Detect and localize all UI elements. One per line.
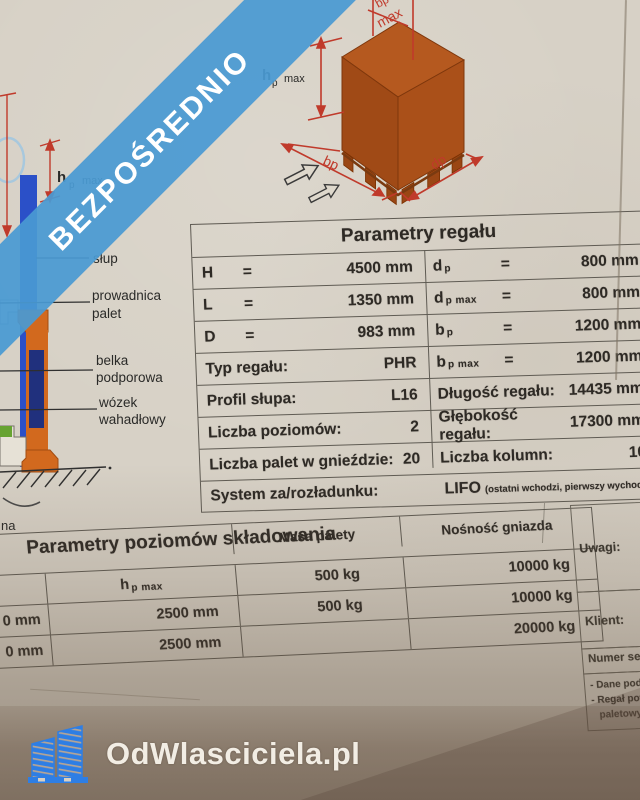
param-label: d <box>432 257 442 275</box>
footnotes-box: - Dane pod - Regał pow paletowyc <box>583 669 640 732</box>
curly-bracket <box>3 498 40 506</box>
param-label: Liczba palet w gnieździe: <box>209 451 394 474</box>
hpmax-main: h <box>120 577 130 593</box>
hpmax-sub: p max <box>131 581 163 593</box>
cell: 0 mm <box>0 605 50 640</box>
cell: Głębokość regału: 17300 mm <box>430 404 640 442</box>
cell: d p max = 800 mm <box>425 276 640 314</box>
ground-hatching <box>0 467 106 488</box>
param-label: System za/rozładunku: <box>210 483 379 506</box>
param-value: 983 mm <box>357 322 415 342</box>
param-value: 14435 mm <box>568 379 640 399</box>
param-value: L16 <box>391 386 418 405</box>
param-subscript: p <box>444 263 451 274</box>
paper-crease <box>30 689 200 700</box>
param-label: L <box>203 296 213 314</box>
column-foot <box>22 450 58 472</box>
support-beam-face <box>29 350 44 428</box>
footnote-line: - Dane pod <box>590 674 640 693</box>
param-value: 800 mm <box>582 283 640 303</box>
storage-levels-table: Parametry poziomów składowania Masa pale… <box>0 507 604 672</box>
system-value: LIFO (ostatni wchodzi, pierwszy wychodzi… <box>444 474 640 498</box>
param-value: 800 mm <box>581 251 639 271</box>
param-label: H <box>202 264 214 282</box>
hp-max-suffix: max <box>284 73 305 85</box>
rack-parameters-table: Parametry regału H = 4500 mm d p = 800 m… <box>190 210 640 512</box>
cell: 0 mm <box>0 635 53 670</box>
cell: d p = 800 mm <box>424 244 640 282</box>
uwagi-label: Uwagi: <box>579 537 640 555</box>
equals-sign: = <box>243 263 253 281</box>
cell: b p max = 1200 mm <box>428 340 640 378</box>
cell: b p = 1200 mm <box>427 308 640 346</box>
equals-sign: = <box>502 287 512 305</box>
order-info-panel: Uwagi: Klient: Numer sery - Dane pod - R… <box>570 501 640 731</box>
buildings-icon <box>26 722 92 786</box>
param-subscript: p max <box>448 358 480 370</box>
param-subscript: p <box>447 327 454 338</box>
label-podporowa: podporowa <box>96 370 163 385</box>
param-value: PHR <box>383 354 416 373</box>
param-value: 17300 mm <box>570 411 640 431</box>
param-label: Typ regału: <box>205 358 288 378</box>
column-header-masa: Masa palety <box>231 517 402 555</box>
cell <box>240 619 411 657</box>
equals-sign: = <box>244 295 254 313</box>
param-value: 1200 mm <box>576 347 640 367</box>
param-label: b <box>435 321 445 339</box>
label-belka: belka <box>96 353 129 368</box>
klient-box: Klient: <box>577 587 640 650</box>
equals-sign: = <box>500 255 510 273</box>
scanned-rack-datasheet-photo: h p max na słup prowad <box>0 0 640 800</box>
param-label: b <box>436 353 446 371</box>
param-value: 1200 mm <box>574 315 640 335</box>
param-value: 10 <box>629 443 640 461</box>
label-palet: palet <box>92 306 122 321</box>
site-watermark: OdWlasciciela.pl <box>26 722 360 786</box>
cell: Długość regału: 14435 mm <box>429 372 640 410</box>
param-label: d <box>434 289 444 307</box>
site-name: OdWlasciciela.pl <box>106 736 360 772</box>
cell <box>0 574 47 609</box>
label-wahadlowy: wahadłowy <box>98 412 166 427</box>
equals-sign: = <box>245 327 255 345</box>
serial-number-box: Numer sery <box>581 644 640 675</box>
cell: Liczba kolumn: 10 <box>432 436 640 474</box>
uwagi-box: Uwagi: <box>570 500 640 593</box>
param-value: 20 <box>403 450 421 468</box>
param-label: Liczba poziomów: <box>208 420 342 442</box>
param-label: Liczba kolumn: <box>440 446 553 467</box>
partial-word: na <box>1 518 16 533</box>
bp-label: bp <box>321 152 342 173</box>
param-label: D <box>204 328 216 346</box>
klient-label: Klient: <box>585 610 640 628</box>
param-label: Głębokość regału: <box>438 404 568 444</box>
param-label: Długość regału: <box>437 382 555 403</box>
param-value: 1350 mm <box>347 290 414 310</box>
shuttle-cart-green <box>0 426 12 437</box>
label-prowadnica: prowadnica <box>92 288 162 303</box>
equals-sign: = <box>504 351 514 369</box>
param-subscript: p max <box>445 295 477 307</box>
equals-sign: = <box>503 319 513 337</box>
hatch-dot <box>109 467 112 470</box>
param-value: 4500 mm <box>346 258 413 278</box>
param-value: 2 <box>410 418 419 436</box>
param-label: Profil słupa: <box>206 389 296 410</box>
label-wozek: wózek <box>98 395 138 410</box>
column-header-nosnosc: Nośność gniazda <box>399 508 594 547</box>
lifo-note: (ostatni wchodzi, pierwszy wychodzi) <box>485 479 640 495</box>
lifo-value: LIFO <box>444 479 481 498</box>
